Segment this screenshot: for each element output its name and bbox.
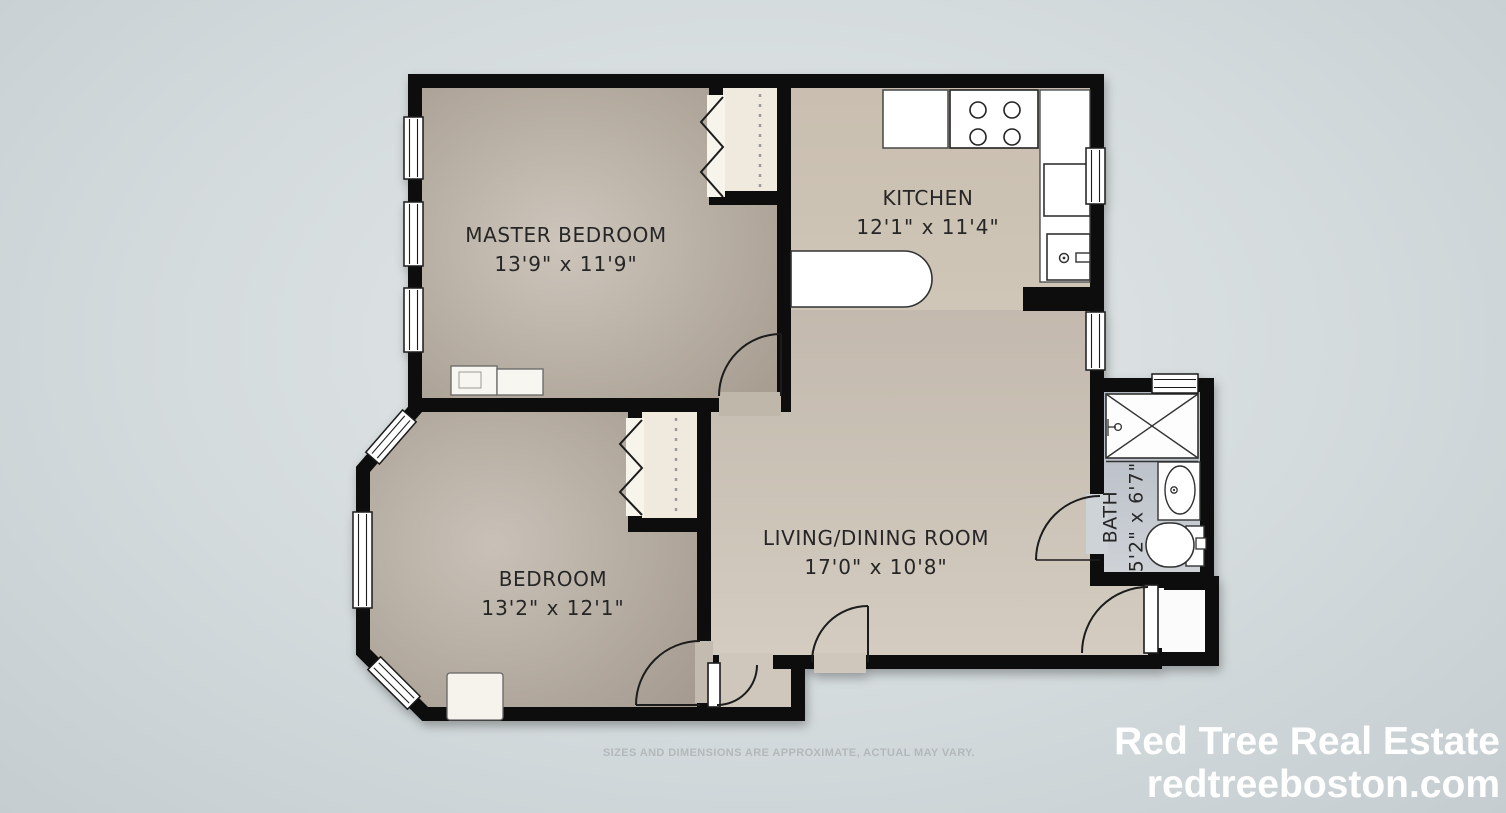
wall-segment	[1023, 287, 1104, 311]
bay-window	[353, 512, 372, 608]
side-table	[447, 673, 503, 720]
branding-company: Red Tree Real Estate	[1114, 721, 1500, 764]
room-name: BEDROOM	[481, 565, 624, 594]
room-label-master-bedroom: MASTER BEDROOM 13'9" x 11'9"	[465, 221, 667, 279]
room-label-bath: BATH 5'2" x 6'7"	[1098, 462, 1149, 573]
room-dimensions: 13'9" x 11'9"	[465, 250, 667, 279]
window	[1152, 374, 1198, 393]
bedroom-closet-floor	[642, 412, 697, 518]
room-label-living-dining: LIVING/DINING ROOM 17'0" x 10'8"	[763, 524, 989, 582]
branding-website: redtreeboston.com	[1114, 764, 1500, 807]
bathroom-sink	[1158, 462, 1200, 520]
hall-closet-floor	[1162, 590, 1205, 652]
room-dimensions: 13'2" x 12'1"	[481, 594, 624, 623]
bench	[451, 366, 543, 395]
kitchen-counter	[883, 90, 948, 148]
dishwasher	[1047, 234, 1090, 280]
window	[404, 288, 423, 352]
counter-peninsula	[791, 251, 932, 307]
branding: Red Tree Real Estate redtreeboston.com	[1114, 721, 1500, 807]
room-name: LIVING/DINING ROOM	[763, 524, 989, 553]
window	[404, 202, 423, 266]
window	[1086, 148, 1105, 204]
room-label-kitchen: KITCHEN 12'1" x 11'4"	[856, 184, 999, 242]
window	[1086, 312, 1105, 370]
master-closet-floor	[723, 88, 777, 191]
floorplan-canvas: MASTER BEDROOM 13'9" x 11'9" KITCHEN 12'…	[0, 0, 1506, 813]
room-name: MASTER BEDROOM	[465, 221, 667, 250]
door-leaf	[708, 663, 720, 707]
room-dimensions: 17'0" x 10'8"	[763, 553, 989, 582]
kitchen-sink	[1044, 164, 1090, 216]
shower	[1106, 394, 1198, 462]
disclaimer-text: SIZES AND DIMENSIONS ARE APPROXIMATE, AC…	[603, 747, 975, 759]
room-label-bedroom: BEDROOM 13'2" x 12'1"	[481, 565, 624, 623]
room-name: BATH	[1098, 462, 1124, 573]
room-dimensions: 12'1" x 11'4"	[856, 213, 999, 242]
stove	[950, 90, 1038, 148]
room-dimensions: 5'2" x 6'7"	[1124, 462, 1150, 573]
floorplan-drawing	[0, 0, 1506, 813]
door-leaf	[1144, 585, 1158, 653]
room-name: KITCHEN	[856, 184, 999, 213]
toilet	[1146, 523, 1206, 567]
window	[404, 117, 423, 179]
